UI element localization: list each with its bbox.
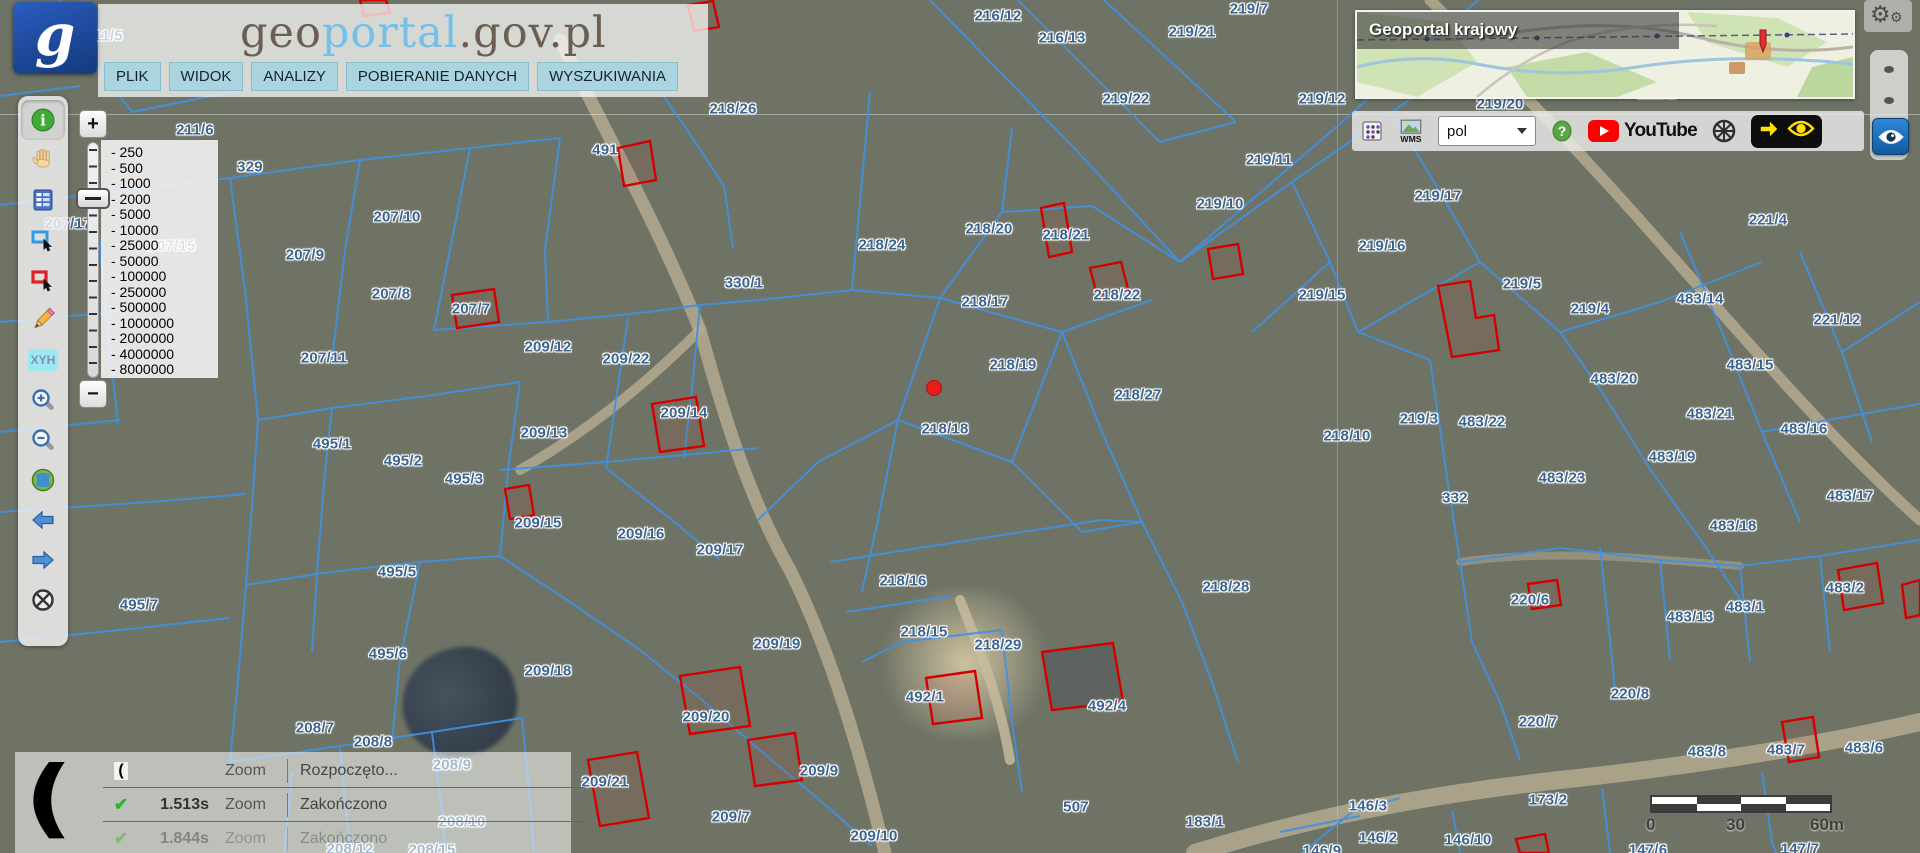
parcel-label: 219/3 (1400, 411, 1439, 428)
language-select[interactable]: pol (1438, 116, 1536, 146)
parcel-label: 219/15 (1298, 287, 1345, 304)
scale-option-2000000[interactable]: - 2000000 (111, 331, 218, 347)
parcel-label: 221/12 (1813, 312, 1860, 329)
parcel-label: 209/20 (682, 709, 729, 726)
gear-icon: ⚙ (1870, 1, 1891, 28)
help-icon[interactable]: ? (1550, 119, 1574, 143)
moon-icon: ( (114, 762, 127, 780)
parcel-label: 218/18 (921, 421, 968, 438)
status-text: Zakończono (287, 827, 585, 851)
parcel-label: 483/15 (1726, 357, 1773, 374)
layer-visibility-button[interactable] (1872, 118, 1909, 155)
parcel-label: 483/21 (1686, 406, 1733, 423)
tool-zoom-in[interactable] (21, 380, 65, 420)
parcel-label: 220/8 (1611, 686, 1650, 703)
menu-item-pobieranie-danych[interactable]: POBIERANIE DANYCH (346, 62, 529, 91)
parcel-label: 209/12 (524, 339, 571, 356)
parcel-label: 216/13 (1038, 30, 1085, 47)
wms-icon[interactable]: WMS (1398, 118, 1424, 144)
parcel-label: 483/7 (1767, 742, 1806, 759)
parcel-label: 483/16 (1780, 421, 1827, 438)
scale-end-label: 60m (1810, 815, 1844, 835)
wheel-icon[interactable] (1711, 118, 1737, 144)
scale-option-50000[interactable]: - 50000 (111, 254, 218, 270)
parcel-label: 209/21 (581, 774, 628, 791)
scale-option-8000000[interactable]: - 8000000 (111, 362, 218, 378)
table-icon (30, 187, 56, 213)
building-outline (1208, 244, 1243, 279)
parcel-label: 207/7 (452, 301, 491, 318)
parcel-label: 207/11 (301, 350, 347, 367)
tool-back[interactable] (21, 500, 65, 540)
building-outline (1438, 281, 1499, 357)
parcel-label: 218/27 (1114, 387, 1161, 404)
parcel-label: 492/1 (906, 689, 945, 706)
parcel-label: 220/7 (1519, 714, 1558, 731)
tool-identify[interactable]: i (21, 100, 65, 140)
tool-coords[interactable]: XYH (21, 340, 65, 380)
scale-option-1000000[interactable]: - 1000000 (111, 316, 218, 332)
visibility-controls (1751, 115, 1822, 148)
zoom-in-icon (30, 387, 56, 413)
tool-full-extent[interactable] (21, 460, 65, 500)
tool-select-area[interactable] (21, 220, 65, 260)
tool-zoom-out[interactable] (21, 420, 65, 460)
parcel-label: 218/19 (989, 357, 1036, 374)
tool-select-obj[interactable] (21, 260, 65, 300)
tool-forward[interactable] (21, 540, 65, 580)
parcel-label: 219/10 (1196, 196, 1243, 213)
parcel-label: 207/10 (373, 209, 420, 226)
info-icon: i (30, 107, 56, 133)
parcel-label: 495/5 (378, 564, 417, 581)
selected-point-marker (926, 380, 942, 396)
parcel-label: 209/15 (514, 515, 561, 532)
parcel-label: 219/12 (1298, 91, 1345, 108)
scale-option-4000000[interactable]: - 4000000 (111, 347, 218, 363)
site-title: geoportal.gov.pl (240, 8, 607, 58)
menu-item-plik[interactable]: PLIK (104, 62, 161, 91)
parcel-label: 209/9 (800, 763, 839, 780)
parcel-label: 218/22 (1093, 287, 1140, 304)
youtube-label: YouTube (1624, 120, 1697, 142)
svg-text:WMS: WMS (1400, 134, 1421, 144)
check-icon: ✔ (114, 795, 128, 814)
parcel-label: 218/21 (1042, 227, 1089, 244)
parcel-label: 483/19 (1648, 449, 1695, 466)
check-icon: ✔ (114, 829, 128, 848)
parcel-label: 218/28 (1202, 579, 1249, 596)
arrow-left-icon (30, 507, 56, 533)
scale-start-label: 0 (1646, 815, 1655, 835)
hand-icon (30, 147, 56, 173)
chevron-down-icon (1517, 128, 1527, 134)
tool-legend[interactable] (21, 180, 65, 220)
parcel-label: 495/7 (120, 597, 159, 614)
parcel-label: 147/6 (1629, 842, 1668, 853)
scale-bar-segments (1650, 795, 1832, 813)
zoom-slider-handle[interactable] (76, 188, 110, 209)
parcel-label: 483/22 (1458, 414, 1505, 431)
parcel-label: 495/6 (369, 646, 408, 663)
parcel-label: 330/1 (725, 275, 764, 292)
parcel-label: 208/7 (296, 720, 335, 737)
zoom-in-button[interactable]: + (79, 110, 107, 138)
tool-pan[interactable] (21, 140, 65, 180)
parcel-label: 209/16 (617, 526, 664, 543)
parcel-label: 483/17 (1826, 488, 1873, 505)
parcel-label: 483/20 (1590, 371, 1637, 388)
building-outline (1902, 580, 1920, 618)
parcel-label: 218/26 (709, 101, 756, 118)
parcel-label: 209/18 (524, 663, 571, 680)
building-outline (1516, 834, 1549, 853)
parcel-label: 483/23 (1538, 470, 1585, 487)
parcel-label: 218/15 (900, 624, 947, 641)
parcel-label: 209/7 (712, 809, 751, 826)
parcel-label: 483/18 (1709, 518, 1756, 535)
scale-list-panel: - 250- 500- 1000- 2000- 5000- 10000- 250… (101, 140, 218, 378)
map-scale-bar: 0 30 60m (1650, 795, 1836, 835)
scale-option-500[interactable]: - 500 (111, 161, 218, 177)
status-action: Zoom (209, 796, 287, 814)
parcel-label: 183/1 (1186, 814, 1225, 831)
parcel-label: 219/5 (1503, 276, 1542, 293)
parcel-label: 491 (592, 142, 618, 159)
zoom-slider-ticks (89, 149, 97, 371)
parcel-label: 483/6 (1845, 740, 1884, 757)
svg-text:?: ? (1558, 123, 1567, 139)
parcel-label: 216/12 (974, 8, 1021, 25)
parcel-label: 218/10 (1323, 428, 1370, 445)
zoom-out-button[interactable]: − (79, 380, 107, 408)
building-outline (618, 141, 656, 186)
parcel-label: 209/14 (660, 405, 707, 422)
blue-rect-select-icon (30, 227, 56, 253)
parcel-label: 495/3 (445, 471, 484, 488)
parcel-label: 495/1 (313, 436, 352, 453)
parcel-label: 219/7 (1230, 1, 1269, 18)
menu-item-wyszukiwania[interactable]: WYSZUKIWANIA (537, 62, 678, 91)
parcel-label: 483/2 (1826, 580, 1865, 597)
parcel-label: 209/22 (602, 351, 649, 368)
scale-option-10000[interactable]: - 10000 (111, 223, 218, 239)
crossed-circle-icon (30, 587, 56, 613)
parcel-label: 219/4 (1571, 301, 1610, 318)
parcel-label: 173/2 (1529, 792, 1568, 809)
red-rect-select-icon (30, 267, 56, 293)
parcel-label: 221/4 (1749, 212, 1788, 229)
parcel-label: 483/1 (1726, 599, 1765, 616)
parcel-label: 146/9 (1303, 843, 1342, 853)
youtube-play-icon (1588, 120, 1619, 142)
parcel-label: 219/11 (1246, 152, 1292, 169)
eye-icon (1877, 127, 1905, 147)
status-row: ✔1.513sZoomZakończono (103, 788, 585, 821)
panel-toggle-dot[interactable] (1884, 97, 1894, 104)
parcel-label: 492/4 (1088, 698, 1127, 715)
main-menu: PLIKWIDOKANALIZYPOBIERANIE DANYCHWYSZUKI… (104, 62, 678, 91)
parcel-label: 220/6 (1511, 592, 1550, 609)
parcel-label: 207/9 (286, 247, 325, 264)
zoom-out-icon (30, 427, 56, 453)
parcel-label: 146/10 (1444, 832, 1491, 849)
status-duration: 1.844s (139, 830, 209, 848)
geoportal-logo[interactable]: g (13, 2, 97, 74)
panel-toggle-dot[interactable] (1884, 66, 1894, 73)
xyh-icon: XYH (28, 349, 59, 371)
parcel-label: 211/6 (176, 122, 214, 139)
parcel-label: 219/17 (1414, 188, 1461, 205)
scale-option-250000[interactable]: - 250000 (111, 285, 218, 301)
parcel-label: 218/29 (974, 637, 1021, 654)
status-text: Rozpoczęto... (287, 759, 585, 783)
status-row: (ZoomRozpoczęto... (103, 754, 585, 787)
globe-icon (30, 467, 56, 493)
zoom-slider-track[interactable] (87, 142, 99, 378)
parcel-label: 218/16 (879, 573, 926, 590)
status-action: Zoom (209, 762, 287, 780)
parcel-label: 219/21 (1168, 24, 1215, 41)
status-action: Zoom (209, 830, 287, 848)
parcel-label: 483/13 (1666, 609, 1713, 626)
yellow-eye-button[interactable] (1787, 119, 1815, 143)
parcel-label: 483/14 (1676, 291, 1723, 308)
parcel-label: 218/17 (961, 294, 1008, 311)
parcel-label: 507 (1063, 799, 1089, 816)
parcel-label: 208/8 (354, 734, 393, 751)
arrow-right-icon (30, 547, 56, 573)
overview-minimap[interactable]: Geoportal krajowy (1355, 10, 1855, 99)
scale-option-250[interactable]: - 250 (111, 145, 218, 161)
gear-small-icon: ⚙ (1890, 9, 1903, 26)
parcel-label: 219/16 (1358, 238, 1405, 255)
menu-item-widok[interactable]: WIDOK (169, 62, 244, 91)
yellow-arrow-button[interactable] (1758, 118, 1780, 145)
scale-option-100000[interactable]: - 100000 (111, 269, 218, 285)
parcel-label: 146/2 (1359, 830, 1398, 847)
night-mode-icon[interactable]: ( (24, 748, 73, 848)
secondary-toolbar: WMS pol ? YouTube (1352, 111, 1864, 151)
parcel-label: 218/20 (965, 221, 1012, 238)
map-tools-toolbar: iXYH (18, 96, 68, 646)
scale-option-2000[interactable]: - 2000 (111, 192, 218, 208)
pencil-icon (30, 307, 56, 333)
parcel-label: 495/2 (384, 453, 423, 470)
parcel-label: 329 (237, 159, 263, 176)
parcel-label: 209/19 (753, 636, 800, 653)
parcel-label: 483/8 (1688, 744, 1727, 761)
minimap-title: Geoportal krajowy (1357, 12, 1679, 49)
status-duration: 1.513s (139, 796, 209, 814)
scale-option-500000[interactable]: - 500000 (111, 300, 218, 316)
geoportal-map-app: 211/5211/6329491218/26216/12216/13219/21… (0, 0, 1920, 853)
parcel-label: 146/3 (1349, 798, 1388, 815)
status-text: Zakończono (287, 793, 585, 817)
status-row: ✔1.844sZoomZakończono (103, 822, 585, 853)
parcel-label: 209/10 (850, 828, 897, 845)
scale-mid-label: 30 (1726, 815, 1745, 835)
scale-option-25000[interactable]: - 25000 (111, 238, 218, 254)
parcel-label: 218/24 (858, 237, 905, 254)
layer-grid-icon[interactable] (1360, 119, 1384, 143)
menu-item-analizy[interactable]: ANALIZY (251, 62, 338, 91)
parcel-label: 209/13 (520, 425, 567, 442)
settings-button[interactable]: ⚙⚙ (1864, 0, 1912, 32)
parcel-label: 207/8 (372, 286, 411, 303)
youtube-link[interactable]: YouTube (1588, 120, 1697, 142)
tool-clear[interactable] (21, 580, 65, 620)
scale-option-5000[interactable]: - 5000 (111, 207, 218, 223)
building-outline (748, 733, 802, 786)
parcel-label: 219/22 (1102, 91, 1149, 108)
parcel-label: 147/7 (1781, 841, 1820, 853)
operation-status-panel: ( (ZoomRozpoczęto...✔1.513sZoomZakończon… (15, 752, 571, 853)
tool-draw[interactable] (21, 300, 65, 340)
parcel-label: 209/17 (696, 542, 743, 559)
parcel-label: 332 (1442, 490, 1468, 507)
svg-text:i: i (40, 112, 46, 130)
language-value: pol (1447, 123, 1467, 140)
scale-option-1000[interactable]: - 1000 (111, 176, 218, 192)
